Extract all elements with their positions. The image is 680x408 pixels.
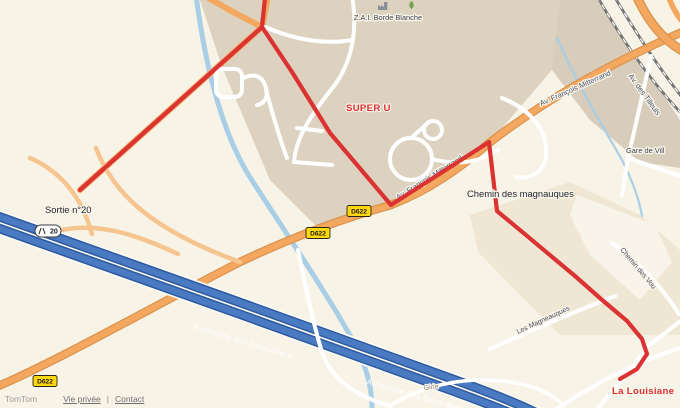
contact-link[interactable]: Contact: [115, 394, 144, 404]
svg-text:D622: D622: [310, 231, 326, 238]
attribution-separator: |: [107, 394, 109, 404]
svg-text:D622: D622: [37, 379, 53, 386]
map-canvas[interactable]: Av. François Mitterrand Z.A.I. Borde Bla…: [0, 0, 680, 408]
svg-text:20: 20: [50, 229, 58, 236]
street-label-chemin-des-magnauques: Chemin des magnauques: [467, 188, 574, 199]
privacy-link[interactable]: Vie privée: [63, 394, 101, 404]
d622-badge: D622: [33, 376, 57, 387]
exit-20-shield: 20: [35, 225, 61, 237]
tomtom-logo[interactable]: TomTom: [5, 394, 37, 404]
label-sortie-20: Sortie n°20: [45, 204, 92, 215]
poi-label-gare: Gare de Vill: [626, 146, 665, 155]
d622-badge: D622: [306, 228, 330, 239]
map-attribution: TomTom Vie privée | Contact: [5, 394, 144, 404]
map-graphics: Av. François Mitterrand Z.A.I. Borde Bla…: [0, 0, 680, 408]
area-label-zai-borde-blanche: Z.A.I. Borde Blanche: [354, 13, 422, 22]
poi-label-super-u: SUPER U: [346, 103, 391, 114]
d622-badge: D622: [347, 206, 371, 217]
poi-label-la-louisiane: La Louisiane: [612, 386, 674, 397]
svg-text:D622: D622: [351, 209, 367, 216]
